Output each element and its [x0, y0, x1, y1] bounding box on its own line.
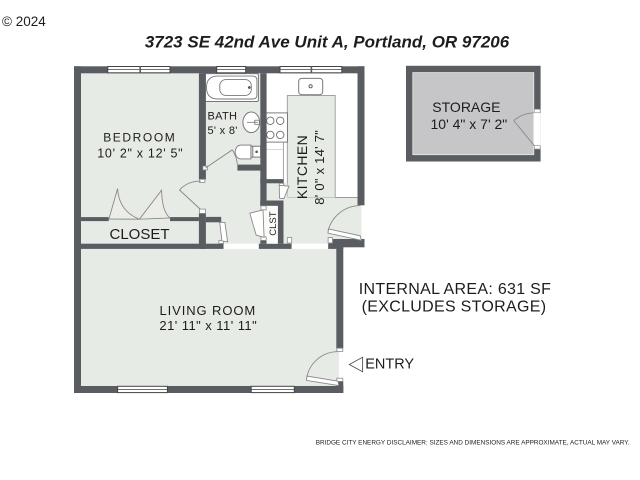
svg-text:5' x 8': 5' x 8' [208, 125, 238, 137]
svg-text:10' 2" x 12' 5": 10' 2" x 12' 5" [97, 147, 183, 161]
svg-text:21' 11" x 11' 11": 21' 11" x 11' 11" [159, 318, 257, 333]
svg-text:(EXCLUDES STORAGE): (EXCLUDES STORAGE) [362, 299, 547, 316]
svg-text:CLOSET: CLOSET [109, 226, 169, 243]
svg-text:STORAGE: STORAGE [432, 99, 500, 115]
svg-text:KITCHEN: KITCHEN [294, 135, 310, 199]
svg-text:LIVING ROOM: LIVING ROOM [160, 303, 257, 318]
svg-text:3723 SE 42nd Ave Unit A, Portl: 3723 SE 42nd Ave Unit A, Portland, OR 97… [145, 32, 510, 51]
svg-text:10' 4" x 7' 2": 10' 4" x 7' 2" [431, 116, 508, 132]
svg-text:ENTRY: ENTRY [365, 357, 414, 373]
svg-text:8' 0" x 14' 7": 8' 0" x 14' 7" [312, 130, 327, 205]
svg-text:BEDROOM: BEDROOM [103, 131, 176, 145]
svg-text:CLST: CLST [268, 211, 279, 235]
svg-text:BATH: BATH [208, 111, 238, 123]
svg-text:© 2024: © 2024 [2, 14, 46, 29]
svg-text:INTERNAL AREA: 631 SF: INTERNAL AREA: 631 SF [359, 281, 551, 298]
svg-text:BRIDGE CITY ENERGY DISCLAIMER:: BRIDGE CITY ENERGY DISCLAIMER: SIZES AND… [316, 439, 630, 446]
